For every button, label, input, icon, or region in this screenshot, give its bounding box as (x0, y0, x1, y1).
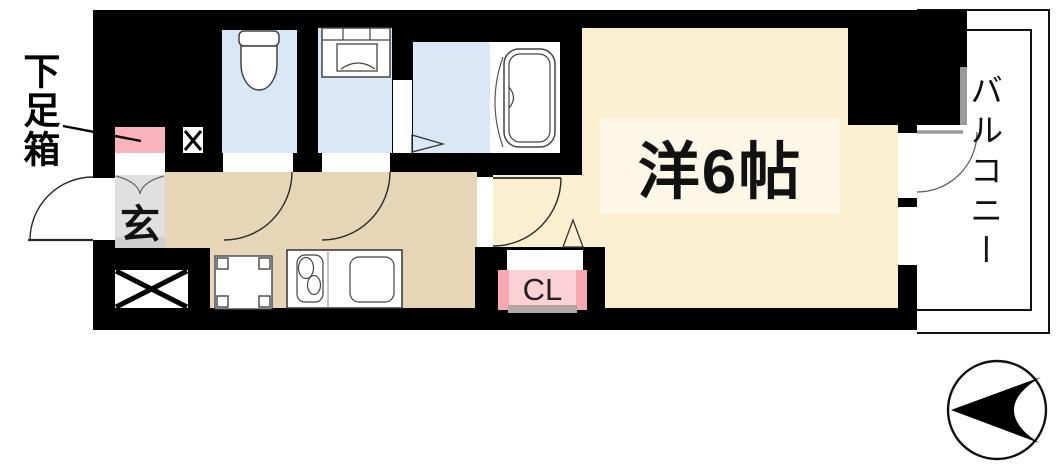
entrance-door-swing-arc (30, 177, 93, 240)
main-room-door-opening (477, 177, 493, 247)
balcony-label: バルコニー (966, 73, 1001, 273)
shoe-box-front-opening (115, 153, 165, 175)
meter-box (183, 127, 203, 153)
toilet-door-opening (223, 153, 293, 172)
closet-label: CL (523, 270, 563, 310)
bathtub-area (490, 42, 560, 153)
shoe-box (115, 127, 165, 153)
main-room-label-box: 洋6帖 (600, 118, 840, 213)
laundry-room (318, 28, 392, 153)
compass-icon (948, 361, 1046, 459)
pipe-space-wall-block (93, 248, 210, 330)
entrance-label: 玄 (115, 192, 165, 250)
laundry-door-opening (322, 153, 390, 172)
balcony-door-opening (898, 133, 917, 198)
closet: CL (498, 270, 587, 310)
toilet-room (222, 30, 297, 153)
bathroom-floor (413, 42, 490, 153)
closet-door-opening (507, 250, 583, 270)
entrance-door-opening (93, 178, 115, 240)
balcony-window-opening (898, 207, 917, 265)
main-room-label: 洋6帖 (638, 121, 802, 211)
main-room-area-right (848, 125, 898, 308)
floor-plan: CL 洋6帖 (0, 0, 1059, 468)
shoe-box-label: 下足箱 (18, 52, 57, 169)
bathroom-door-opening (393, 80, 412, 153)
